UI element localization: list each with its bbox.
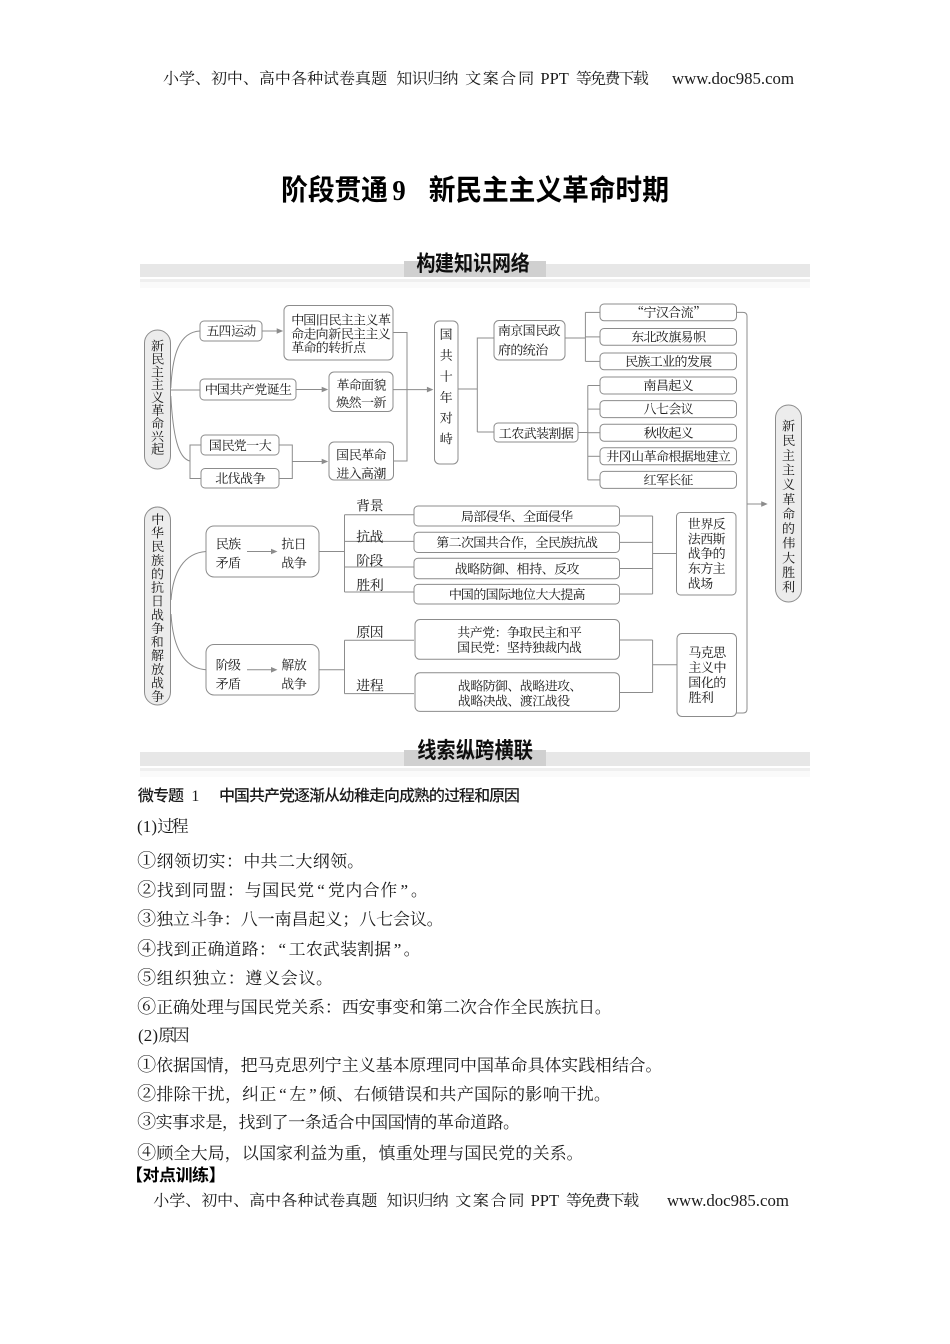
svg-text:胜利: 胜利 xyxy=(688,687,713,706)
svg-text:战略防御、相持、反攻: 战略防御、相持、反攻 xyxy=(455,558,580,577)
svg-text:抗日: 抗日 xyxy=(281,534,306,553)
svg-text:战略决战、渡江战役: 战略决战、渡江战役 xyxy=(458,691,570,710)
svg-text:解放: 解放 xyxy=(281,655,306,674)
svg-text:府的统治: 府的统治 xyxy=(498,339,548,358)
svg-text:战争: 战争 xyxy=(281,553,307,572)
svg-text:红军长征: 红军长征 xyxy=(643,470,693,489)
svg-text:“宁汉合流”: “宁汉合流” xyxy=(631,302,705,321)
svg-text:矛盾: 矛盾 xyxy=(216,674,241,693)
svg-text:东北改旗易帜: 东北改旗易帜 xyxy=(631,327,706,346)
svg-text:五四运动: 五四运动 xyxy=(206,321,256,340)
svg-text:利: 利 xyxy=(782,577,795,596)
svg-text:南昌起义: 南昌起义 xyxy=(643,375,693,394)
svg-text:进程: 进程 xyxy=(356,675,383,695)
svg-text:起: 起 xyxy=(151,439,164,458)
svg-text:年: 年 xyxy=(440,387,453,406)
svg-text:共: 共 xyxy=(440,345,453,364)
svg-text:中国共产党诞生: 中国共产党诞生 xyxy=(205,379,292,398)
svg-text:南京国民政: 南京国民政 xyxy=(498,320,561,339)
svg-text:国: 国 xyxy=(440,324,453,343)
svg-text:中国的国际地位大大提高: 中国的国际地位大大提高 xyxy=(449,584,586,603)
svg-text:原因: 原因 xyxy=(356,622,383,642)
svg-text:峙: 峙 xyxy=(440,429,453,448)
svg-text:民族: 民族 xyxy=(216,534,241,553)
svg-text:革命的转折点: 革命的转折点 xyxy=(291,337,366,356)
svg-text:局部侵华、全面侵华: 局部侵华、全面侵华 xyxy=(461,506,573,525)
svg-text:焕然一新: 焕然一新 xyxy=(336,392,386,411)
svg-text:争: 争 xyxy=(151,686,165,705)
svg-text:背景: 背景 xyxy=(356,495,383,515)
svg-text:国民党：坚持独裁内战: 国民党：坚持独裁内战 xyxy=(457,637,582,656)
svg-text:井冈山革命根据地建立: 井冈山革命根据地建立 xyxy=(606,446,731,465)
svg-text:秋收起义: 秋收起义 xyxy=(643,422,693,441)
svg-text:八七会议: 八七会议 xyxy=(643,399,693,418)
svg-text:工农武装割据: 工农武装割据 xyxy=(499,423,574,442)
svg-text:十: 十 xyxy=(440,366,453,385)
svg-text:战场: 战场 xyxy=(688,573,713,592)
svg-text:革命面貌: 革命面貌 xyxy=(336,375,386,394)
svg-text:民族工业的发展: 民族工业的发展 xyxy=(625,351,712,370)
svg-text:战争: 战争 xyxy=(281,674,307,693)
svg-text:阶级: 阶级 xyxy=(216,655,241,674)
svg-text:对: 对 xyxy=(440,408,453,427)
svg-text:进入高潮: 进入高潮 xyxy=(336,463,386,482)
svg-text:矛盾: 矛盾 xyxy=(216,553,241,572)
svg-text:国民党一大: 国民党一大 xyxy=(209,435,272,454)
svg-text:北伐战争: 北伐战争 xyxy=(215,468,266,487)
svg-text:第二次国共合作，全民族抗战: 第二次国共合作，全民族抗战 xyxy=(436,532,598,551)
svg-text:国民革命: 国民革命 xyxy=(336,445,386,464)
svg-text:抗战: 抗战 xyxy=(356,526,383,546)
svg-text:胜利: 胜利 xyxy=(356,575,383,595)
svg-text:阶段: 阶段 xyxy=(356,551,383,571)
